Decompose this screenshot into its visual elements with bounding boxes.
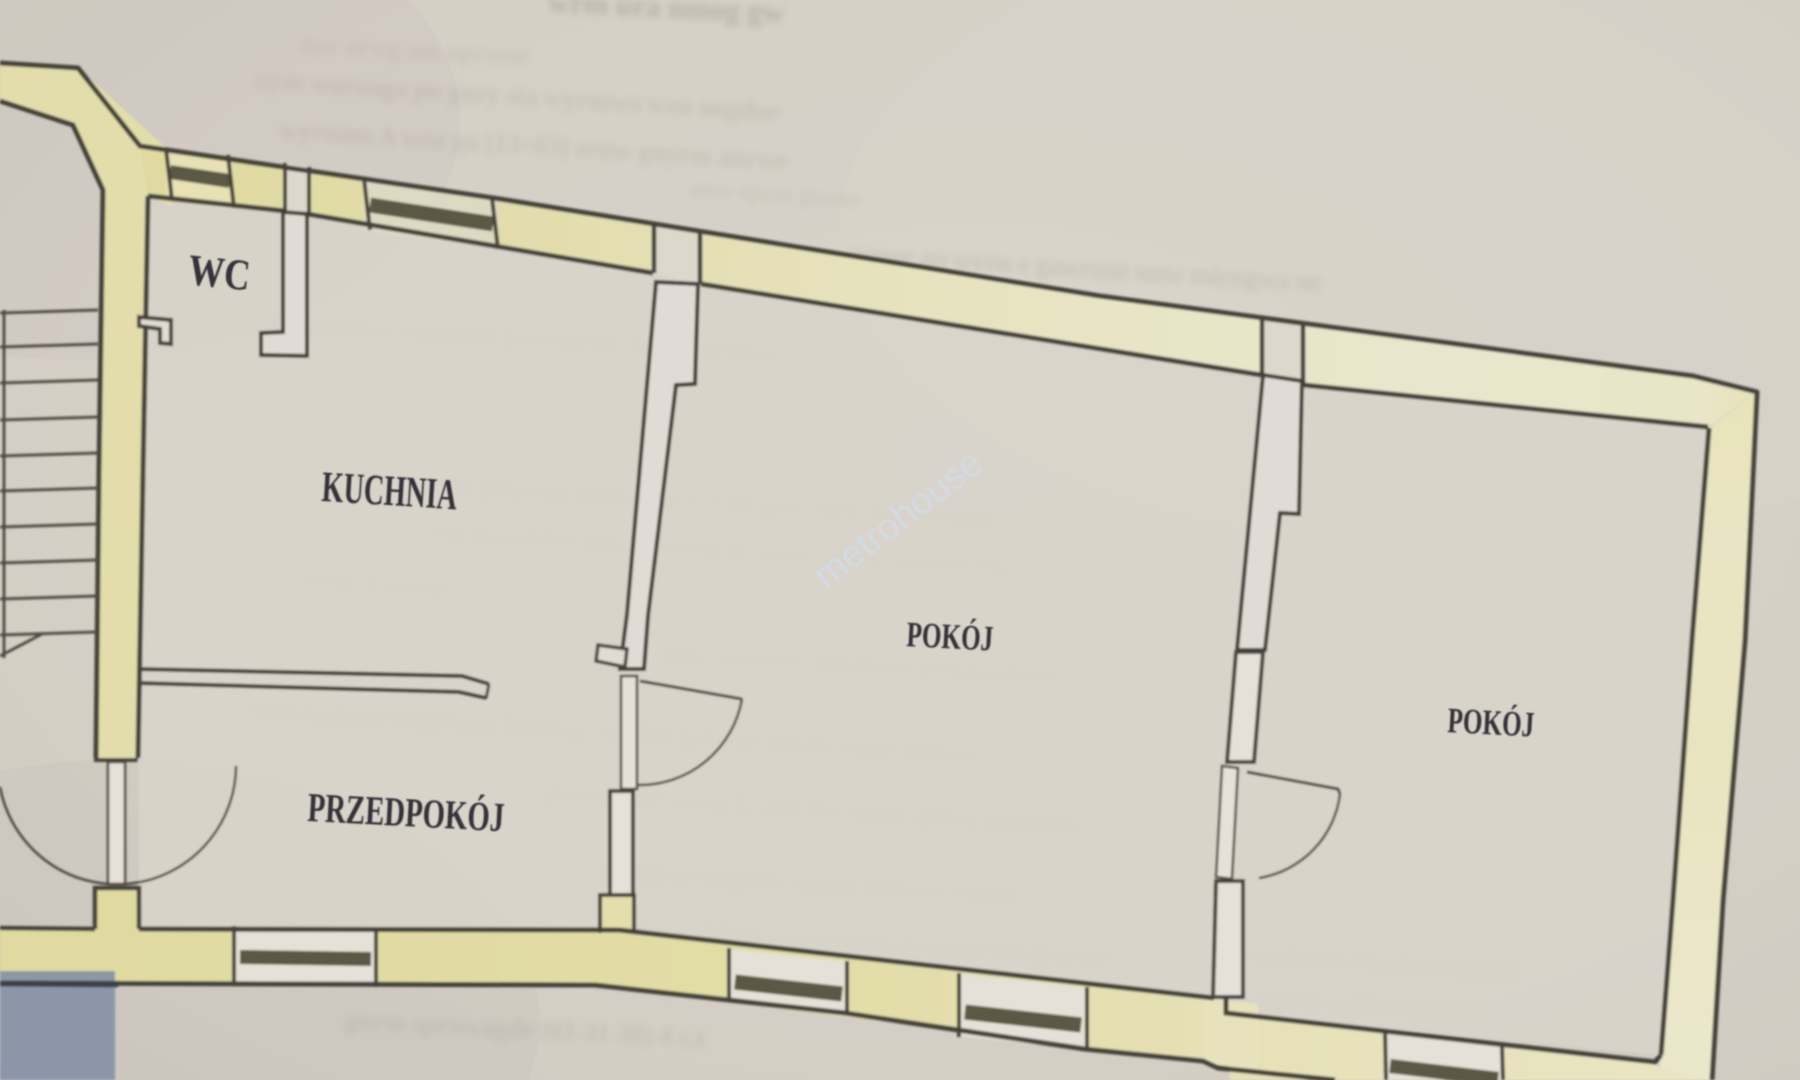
svg-text:WC: WC xyxy=(186,245,253,300)
svg-text:POKÓJ: POKÓJ xyxy=(1447,699,1536,744)
svg-text:KUCHNIA: KUCHNIA xyxy=(320,463,458,519)
svg-text:POKÓJ: POKÓJ xyxy=(906,613,995,658)
